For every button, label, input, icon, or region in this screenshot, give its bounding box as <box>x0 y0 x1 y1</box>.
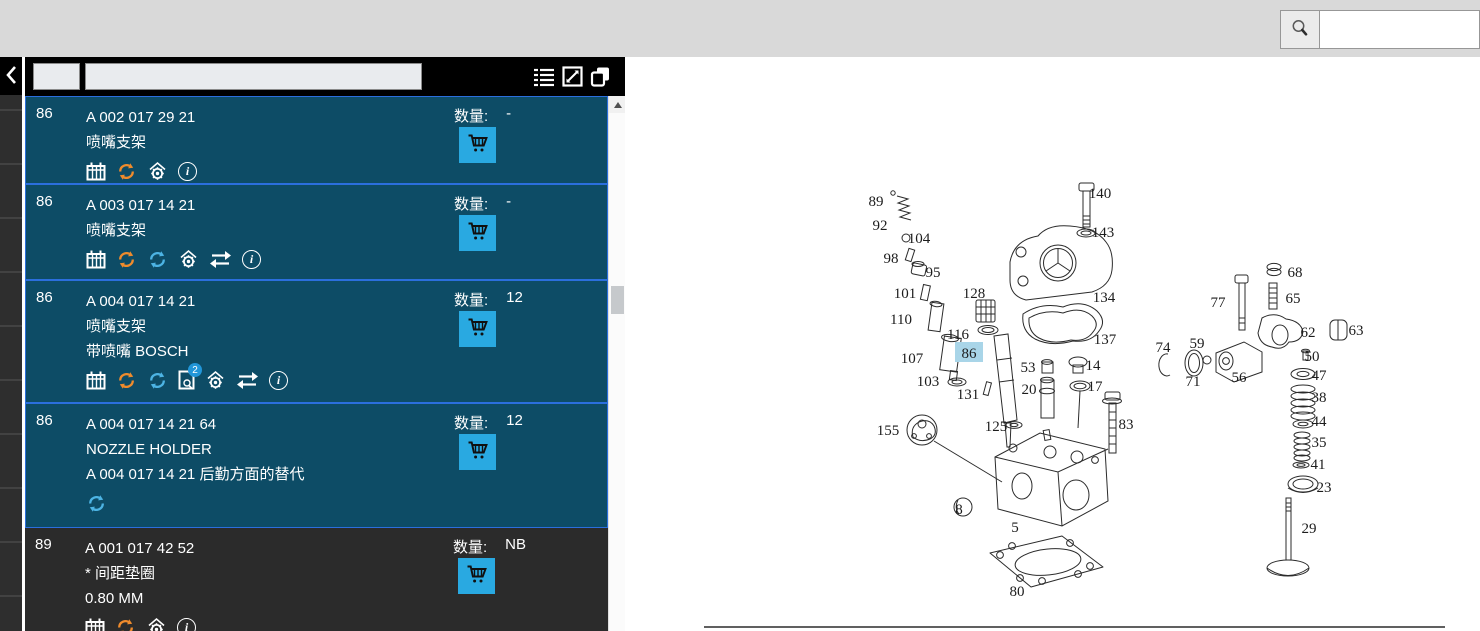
factory-gear-icon[interactable] <box>146 617 167 631</box>
diagram-line-art <box>704 183 1445 627</box>
part-name-line: A 004 017 14 21 后勤方面的替代 <box>86 462 437 487</box>
exploded-diagram-pane: 8992104989510111012811686107103131532014… <box>625 57 1480 631</box>
refresh-blue-icon[interactable] <box>147 370 168 391</box>
diagram-part-label-107[interactable]: 107 <box>901 351 924 367</box>
copy-button[interactable] <box>590 66 611 90</box>
diagram-part-label-35[interactable]: 35 <box>1312 435 1327 451</box>
diagram-part-label-56[interactable]: 56 <box>1232 370 1248 386</box>
toolbar-icons <box>533 66 611 90</box>
part-number: A 001 017 42 52 <box>85 536 438 561</box>
list-view-button[interactable] <box>533 67 555 90</box>
quantity-value: - <box>506 193 511 214</box>
scroll-up-button[interactable] <box>609 96 626 113</box>
quantity-block: 数量:NB <box>453 536 526 557</box>
part-number: A 004 017 14 21 <box>86 289 437 314</box>
diagram-part-label-8[interactable]: 8 <box>955 502 963 518</box>
chevron-left-icon <box>5 65 17 88</box>
diagram-part-label-17[interactable]: 17 <box>1088 379 1104 395</box>
info-icon[interactable]: i <box>177 618 196 631</box>
part-number: A 003 017 14 21 <box>86 193 437 218</box>
quantity-label: 数量: <box>454 412 488 433</box>
parts-list-panel: 86A 002 017 29 21喷嘴支架i数量:-86A 003 017 14… <box>25 57 625 631</box>
swap-icon[interactable] <box>209 250 232 269</box>
position-number: 86 <box>36 193 53 210</box>
parts-row[interactable]: 86A 003 017 14 21喷嘴支架i数量:- <box>25 184 608 280</box>
diagram-part-label-65[interactable]: 65 <box>1286 291 1301 307</box>
diagram-part-label-50[interactable]: 50 <box>1305 349 1320 365</box>
row-action-icons: i <box>86 246 437 272</box>
quantity-label: 数量: <box>454 193 488 214</box>
diagram-part-label-89[interactable]: 89 <box>869 194 884 210</box>
diagram-part-label-92[interactable]: 92 <box>873 218 888 234</box>
diagram-part-label-20[interactable]: 20 <box>1022 382 1037 398</box>
quantity-block: 数量:12 <box>454 289 523 310</box>
info-icon[interactable]: i <box>178 162 197 181</box>
parts-filter-input[interactable] <box>85 63 422 90</box>
parts-rows: 86A 002 017 29 21喷嘴支架i数量:-86A 003 017 14… <box>25 96 608 631</box>
quantity-label: 数量: <box>453 536 487 557</box>
diagram-part-label-137[interactable]: 137 <box>1094 332 1117 348</box>
refresh-orange-icon[interactable] <box>116 370 137 391</box>
diagram-part-label-47[interactable]: 47 <box>1312 368 1328 384</box>
cart-icon <box>466 221 489 245</box>
info-glyph: i <box>178 162 197 181</box>
search-button[interactable] <box>1280 10 1320 49</box>
refresh-orange-icon[interactable] <box>115 617 136 631</box>
search-icon <box>1289 17 1311 42</box>
info-icon[interactable]: i <box>242 250 261 269</box>
refresh-orange-icon[interactable] <box>116 161 137 182</box>
quantity-value: - <box>506 105 511 126</box>
part-name-line: 喷嘴支架 <box>86 218 437 243</box>
quantity-value: NB <box>505 536 526 557</box>
row-content: A 004 017 14 21 64NOZZLE HOLDERA 004 017… <box>86 404 607 516</box>
diagram-part-label-80[interactable]: 80 <box>1010 584 1025 600</box>
quantity-label: 数量: <box>454 105 488 126</box>
diagram-part-label-128[interactable]: 128 <box>963 286 986 302</box>
row-action-icons <box>86 490 437 516</box>
cart-icon <box>466 317 489 341</box>
position-number: 89 <box>35 536 52 553</box>
quantity-block: 数量:12 <box>454 412 523 433</box>
parts-row[interactable]: 89A 001 017 42 52* 间距垫圈0.80 MMi数量:NB <box>25 528 608 631</box>
diagram-part-label-83[interactable]: 83 <box>1119 417 1134 433</box>
position-number: 86 <box>36 289 53 306</box>
info-glyph: i <box>177 618 196 631</box>
diagram-part-label-71[interactable]: 71 <box>1186 374 1201 390</box>
diagram-part-label-101[interactable]: 101 <box>894 286 917 302</box>
refresh-blue-icon[interactable] <box>147 249 168 270</box>
part-name-line: 带喷嘴 BOSCH <box>86 339 437 364</box>
info-icon[interactable]: i <box>269 371 288 390</box>
fullscreen-icon <box>562 66 583 90</box>
epc-parts-window: 86A 002 017 29 21喷嘴支架i数量:-86A 003 017 14… <box>0 0 1480 631</box>
diagram-part-label-5[interactable]: 5 <box>1011 520 1019 536</box>
diagram-part-label-38[interactable]: 38 <box>1312 390 1327 406</box>
calendar-icon[interactable] <box>85 618 105 631</box>
factory-gear-icon[interactable] <box>147 161 168 182</box>
swap-icon[interactable] <box>236 371 259 390</box>
collapse-panel-button[interactable] <box>0 57 22 95</box>
list-icon <box>533 67 555 90</box>
diagram-part-label-134[interactable]: 134 <box>1093 290 1116 306</box>
row-action-icons: i <box>85 614 438 631</box>
quantity-block: 数量:- <box>454 105 511 126</box>
add-to-cart-button[interactable] <box>459 434 496 470</box>
calendar-icon[interactable] <box>86 162 106 181</box>
diagram-part-label-77[interactable]: 77 <box>1211 295 1227 311</box>
diagram-part-label-155[interactable]: 155 <box>877 423 900 439</box>
list-scrollbar[interactable] <box>608 96 625 631</box>
quantity-label: 数量: <box>454 289 488 310</box>
cart-icon <box>466 133 489 157</box>
diagram-part-label-23[interactable]: 23 <box>1317 480 1332 496</box>
diagram-part-label-98[interactable]: 98 <box>884 251 899 267</box>
row-content: A 002 017 29 21喷嘴支架i <box>86 97 607 184</box>
top-bar <box>0 0 1480 57</box>
part-name-line: NOZZLE HOLDER <box>86 437 437 462</box>
row-content: A 003 017 14 21喷嘴支架i <box>86 185 607 272</box>
parts-diagram: 8992104989510111012811686107103131532014… <box>625 57 1480 631</box>
info-glyph: i <box>269 371 288 390</box>
diagram-part-label-29[interactable]: 29 <box>1302 521 1317 537</box>
cart-icon <box>466 440 489 464</box>
refresh-blue-icon[interactable] <box>86 493 107 514</box>
diagram-part-label-44[interactable]: 44 <box>1312 414 1328 430</box>
copy-icon <box>590 66 611 90</box>
add-to-cart-button[interactable] <box>459 215 496 251</box>
diagram-part-label-63[interactable]: 63 <box>1349 323 1364 339</box>
collapsed-nav-strip[interactable] <box>0 57 22 631</box>
diagram-part-label-68[interactable]: 68 <box>1288 265 1303 281</box>
quantity-block: 数量:- <box>454 193 511 214</box>
quantity-value: 12 <box>506 289 523 310</box>
factory-gear-icon[interactable] <box>178 249 199 270</box>
diagram-labels: 8992104989510111012811686107103131532014… <box>869 186 1364 600</box>
part-name-line: * 间距垫圈 <box>85 561 438 586</box>
refresh-orange-icon[interactable] <box>116 249 137 270</box>
add-to-cart-button[interactable] <box>459 311 496 347</box>
cart-icon <box>465 564 488 588</box>
parts-row[interactable]: 86A 004 017 14 21喷嘴支架带喷嘴 BOSCH2i数量:12 <box>25 280 608 403</box>
diagram-part-label-95[interactable]: 95 <box>926 265 941 281</box>
scrollbar-thumb[interactable] <box>611 286 624 314</box>
diagram-part-label-143[interactable]: 143 <box>1092 225 1115 241</box>
parts-list-toolbar <box>25 57 625 96</box>
diagram-part-label-62[interactable]: 62 <box>1301 325 1316 341</box>
part-name-line: 喷嘴支架 <box>86 314 437 339</box>
row-action-icons: i <box>86 158 437 184</box>
diagram-part-label-116[interactable]: 116 <box>947 327 969 343</box>
calendar-icon[interactable] <box>86 371 106 390</box>
parts-row[interactable]: 86A 004 017 14 21 64NOZZLE HOLDERA 004 0… <box>25 403 608 528</box>
diagram-part-label-110[interactable]: 110 <box>890 312 912 328</box>
search-input[interactable] <box>1319 10 1480 49</box>
fullscreen-button[interactable] <box>562 66 583 90</box>
diagram-part-label-86[interactable]: 86 <box>962 346 978 362</box>
position-number: 86 <box>36 412 53 429</box>
parts-row[interactable]: 86A 002 017 29 21喷嘴支架i数量:- <box>25 96 608 184</box>
part-number: A 004 017 14 21 64 <box>86 412 437 437</box>
part-number: A 002 017 29 21 <box>86 105 437 130</box>
add-to-cart-button[interactable] <box>459 127 496 163</box>
row-content: A 001 017 42 52* 间距垫圈0.80 MMi <box>85 528 608 631</box>
position-code-input[interactable] <box>33 63 80 90</box>
diagram-part-label-125[interactable]: 125 <box>985 419 1008 435</box>
diagram-part-label-103[interactable]: 103 <box>917 374 940 390</box>
diagram-part-label-59[interactable]: 59 <box>1190 336 1205 352</box>
part-name-line: 0.80 MM <box>85 586 438 611</box>
add-to-cart-button[interactable] <box>458 558 495 594</box>
row-content: A 004 017 14 21喷嘴支架带喷嘴 BOSCH2i <box>86 281 607 393</box>
info-glyph: i <box>242 250 261 269</box>
diagram-part-label-74[interactable]: 74 <box>1156 340 1172 356</box>
diagram-part-label-131[interactable]: 131 <box>957 387 980 403</box>
diagram-part-label-140[interactable]: 140 <box>1089 186 1112 202</box>
row-action-icons: 2i <box>86 367 437 393</box>
factory-gear-icon[interactable] <box>205 370 226 391</box>
position-number: 86 <box>36 105 53 122</box>
doc-count-badge: 2 <box>188 363 202 377</box>
diagram-part-label-104[interactable]: 104 <box>908 231 931 247</box>
calendar-icon[interactable] <box>86 250 106 269</box>
diagram-part-label-41[interactable]: 41 <box>1311 457 1326 473</box>
doc-badge-2-icon[interactable]: 2 <box>178 370 195 390</box>
diagram-part-label-53[interactable]: 53 <box>1021 360 1036 376</box>
diagram-part-label-14[interactable]: 14 <box>1086 358 1102 374</box>
part-name-line: 喷嘴支架 <box>86 130 437 155</box>
quantity-value: 12 <box>506 412 523 433</box>
